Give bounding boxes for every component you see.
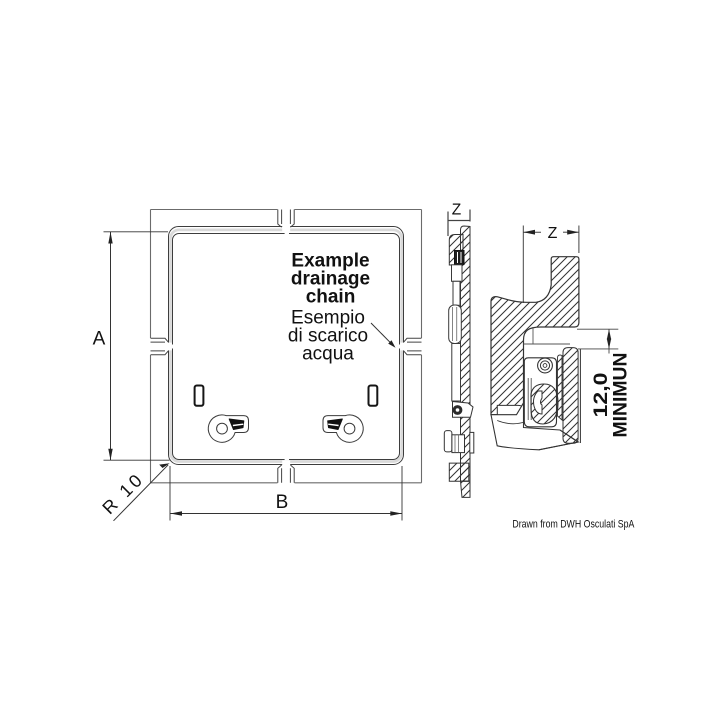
svg-text:MINIMUN: MINIMUN xyxy=(611,353,632,438)
svg-text:12,0: 12,0 xyxy=(591,373,612,418)
svg-text:chain: chain xyxy=(306,286,356,307)
svg-text:A: A xyxy=(93,329,106,350)
svg-text:Z: Z xyxy=(452,202,461,219)
svg-text:Drawn from DWH Osculati SpA: Drawn from DWH Osculati SpA xyxy=(512,519,634,531)
svg-text:acqua: acqua xyxy=(302,343,354,364)
svg-text:B: B xyxy=(276,492,289,513)
svg-text:Z: Z xyxy=(548,225,558,242)
